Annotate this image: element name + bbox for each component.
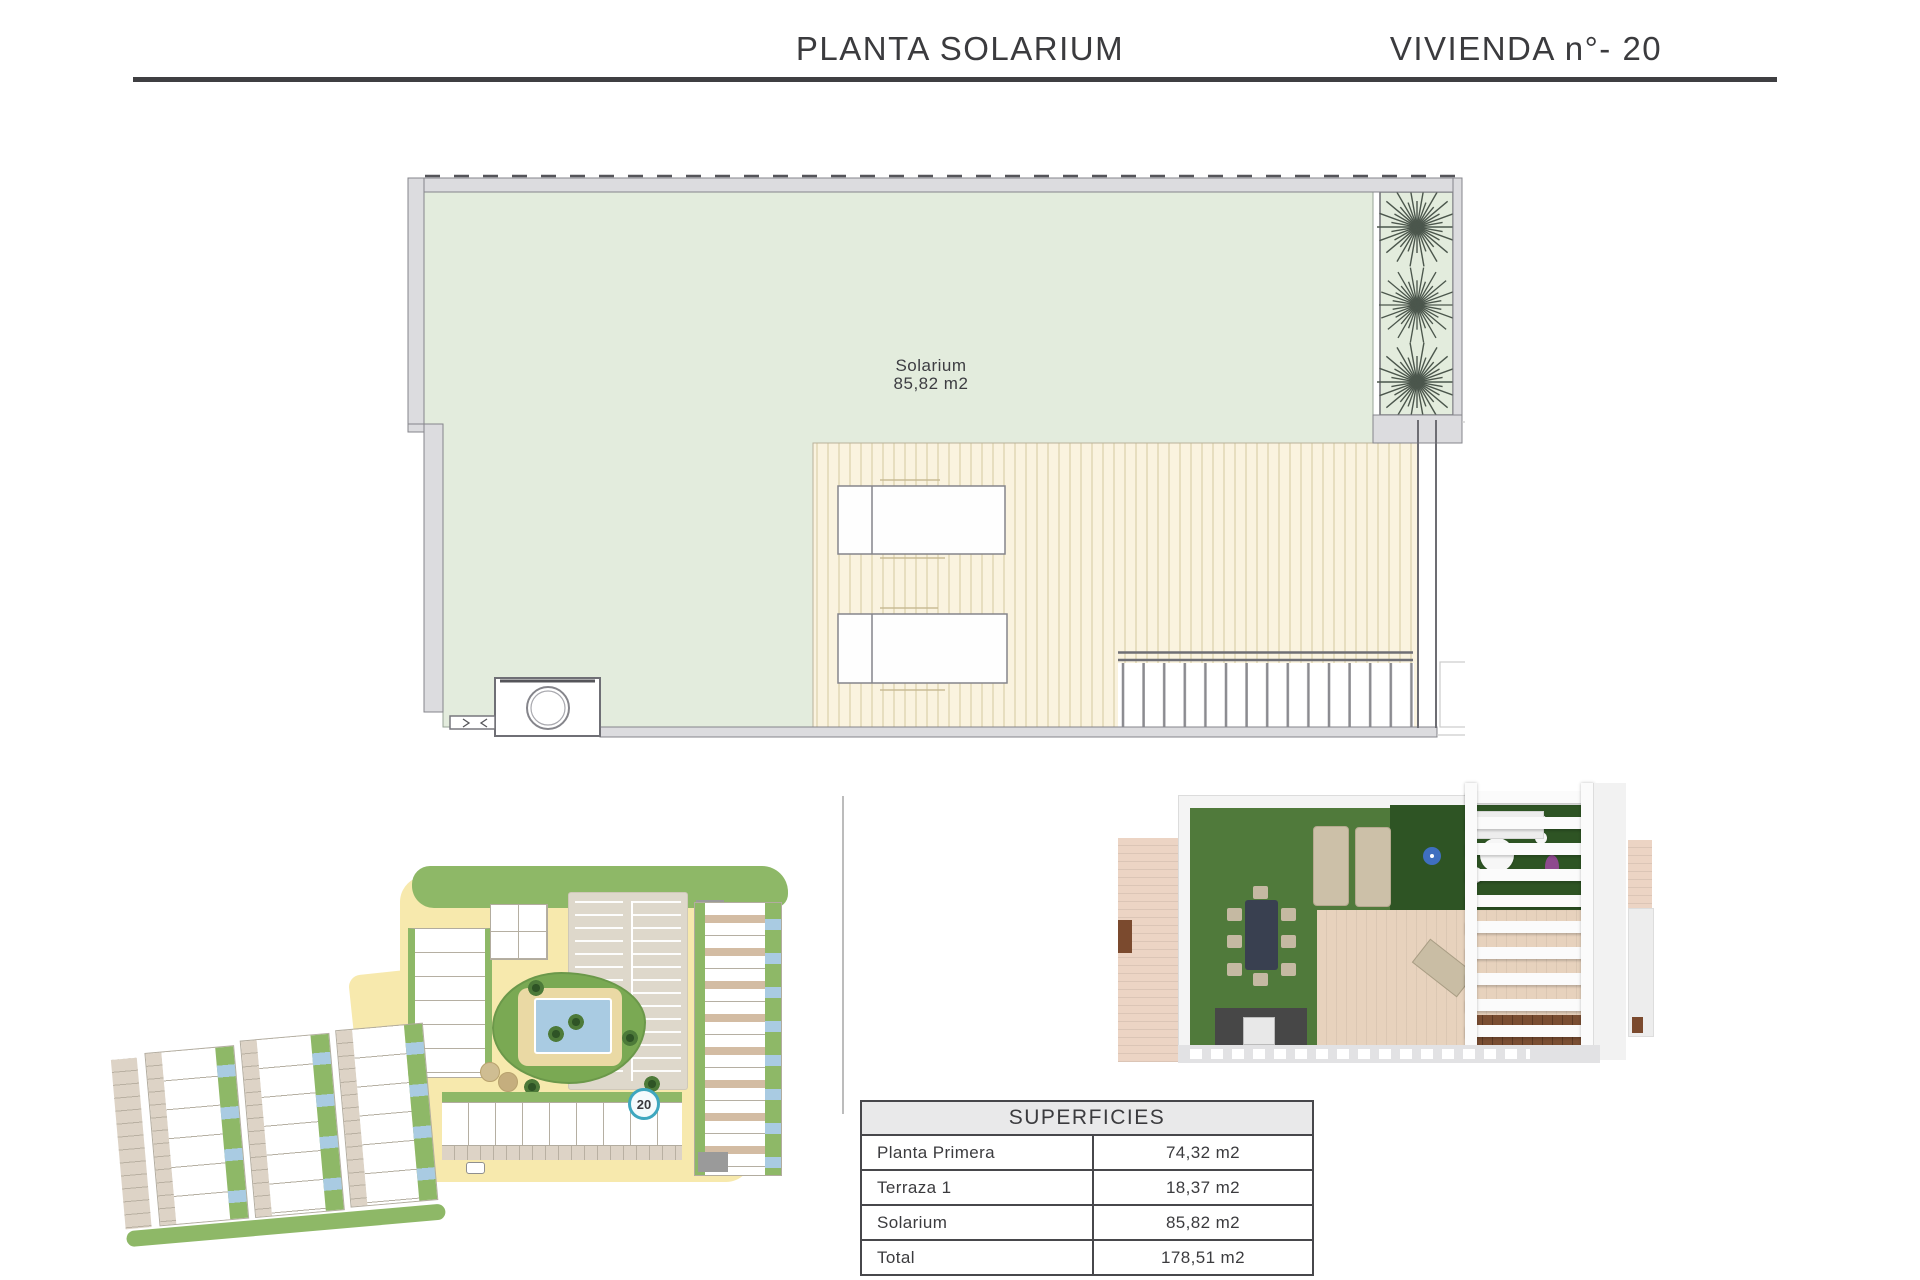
housing-column bbox=[335, 1023, 438, 1208]
row-label: Solarium bbox=[862, 1206, 1092, 1239]
pergola-slat bbox=[1465, 947, 1595, 959]
housing-column bbox=[144, 1045, 249, 1226]
page-title: PLANTA SOLARIUM bbox=[740, 30, 1180, 68]
chair bbox=[1253, 973, 1268, 986]
housing-row-east bbox=[694, 902, 782, 1176]
sun-lounger bbox=[1355, 827, 1391, 907]
bush-icon bbox=[498, 1072, 518, 1092]
pergola-slat bbox=[1465, 817, 1595, 829]
surfaces-table-title: SUPERFICIES bbox=[862, 1102, 1312, 1136]
pergola-slat bbox=[1465, 869, 1595, 881]
unit-20-number: 20 bbox=[637, 1097, 651, 1112]
pergola-slat bbox=[1465, 999, 1595, 1011]
bush-icon bbox=[480, 1062, 500, 1082]
wall-right bbox=[1453, 178, 1462, 426]
parking-stalls bbox=[631, 901, 681, 1081]
room-label-area: 85,82 m2 bbox=[894, 374, 969, 393]
table-row: Solarium 85,82 m2 bbox=[862, 1204, 1312, 1239]
wall-top bbox=[408, 178, 1462, 192]
surfaces-table: SUPERFICIES Planta Primera 74,32 m2 Terr… bbox=[860, 1100, 1314, 1276]
housing-block-west bbox=[110, 1021, 456, 1249]
access-road bbox=[111, 1058, 152, 1230]
housing-column bbox=[240, 1033, 345, 1218]
header-rule bbox=[133, 77, 1777, 82]
row-label: Terraza 1 bbox=[862, 1171, 1092, 1204]
kitchen-sink bbox=[1243, 1017, 1275, 1045]
row-value: 18,37 m2 bbox=[1092, 1171, 1312, 1204]
vent-box bbox=[450, 716, 495, 729]
wood-door bbox=[1118, 920, 1132, 953]
pergola-slat bbox=[1465, 791, 1595, 803]
stair-railing-bars bbox=[1118, 663, 1414, 727]
parasol bbox=[1423, 847, 1441, 865]
palm-tree-icon bbox=[568, 1014, 584, 1030]
chair bbox=[1281, 963, 1296, 976]
pergola-slat bbox=[1465, 895, 1595, 907]
wall-left-lower bbox=[424, 424, 443, 712]
sun-lounger bbox=[838, 614, 1007, 683]
pergola-slat bbox=[1465, 921, 1595, 933]
palm-tree-icon bbox=[548, 1026, 564, 1042]
chair bbox=[1253, 886, 1268, 899]
chair bbox=[1227, 935, 1242, 948]
palm-tree-icon bbox=[622, 1030, 638, 1046]
unit-title: VIVIENDA n°- 20 bbox=[1346, 30, 1706, 68]
pergola-slat bbox=[1465, 843, 1595, 855]
neighbour-outline bbox=[1437, 422, 1465, 735]
row-value: 85,82 m2 bbox=[1092, 1206, 1312, 1239]
facade-railing bbox=[1190, 1049, 1530, 1059]
site-plan: 20 bbox=[104, 854, 816, 1246]
row-value: 178,51 m2 bbox=[1092, 1241, 1312, 1274]
pergola-slat bbox=[1465, 973, 1595, 985]
section-divider bbox=[842, 796, 844, 1114]
table-row: Planta Primera 74,32 m2 bbox=[862, 1136, 1312, 1169]
utility-unit bbox=[495, 678, 600, 736]
chair bbox=[1281, 908, 1296, 921]
table-row: Total 178,51 m2 bbox=[862, 1239, 1312, 1274]
brochure-page: { "header": { "title_left": "PLANTA SOLA… bbox=[0, 0, 1920, 1280]
table-row: Terraza 1 18,37 m2 bbox=[862, 1169, 1312, 1204]
housing-cluster bbox=[490, 904, 548, 960]
chair bbox=[1227, 963, 1242, 976]
pergola-beam bbox=[1465, 783, 1477, 1053]
room-label-name: Solarium bbox=[895, 356, 966, 375]
side-wall bbox=[1593, 783, 1626, 1060]
wood-door bbox=[1632, 1017, 1643, 1033]
solarium-3d-render bbox=[1115, 783, 1655, 1065]
unit-20-marker: 20 bbox=[628, 1088, 660, 1120]
car-icon bbox=[466, 1162, 485, 1174]
pergola-slat bbox=[1465, 1025, 1595, 1037]
chair bbox=[1281, 935, 1296, 948]
wall-bottom bbox=[600, 727, 1437, 737]
dining-table bbox=[1245, 900, 1278, 970]
row-value: 74,32 m2 bbox=[1092, 1136, 1312, 1169]
sun-lounger bbox=[838, 486, 1005, 554]
sun-lounger bbox=[1313, 826, 1349, 906]
utility-block bbox=[698, 1152, 728, 1172]
chair bbox=[1227, 908, 1242, 921]
solarium-floor-plan: Solarium 85,82 m2 bbox=[405, 172, 1465, 738]
wall-left-upper bbox=[408, 178, 424, 430]
row-label: Total bbox=[862, 1241, 1092, 1274]
row-label: Planta Primera bbox=[862, 1136, 1092, 1169]
palm-tree-icon bbox=[528, 980, 544, 996]
